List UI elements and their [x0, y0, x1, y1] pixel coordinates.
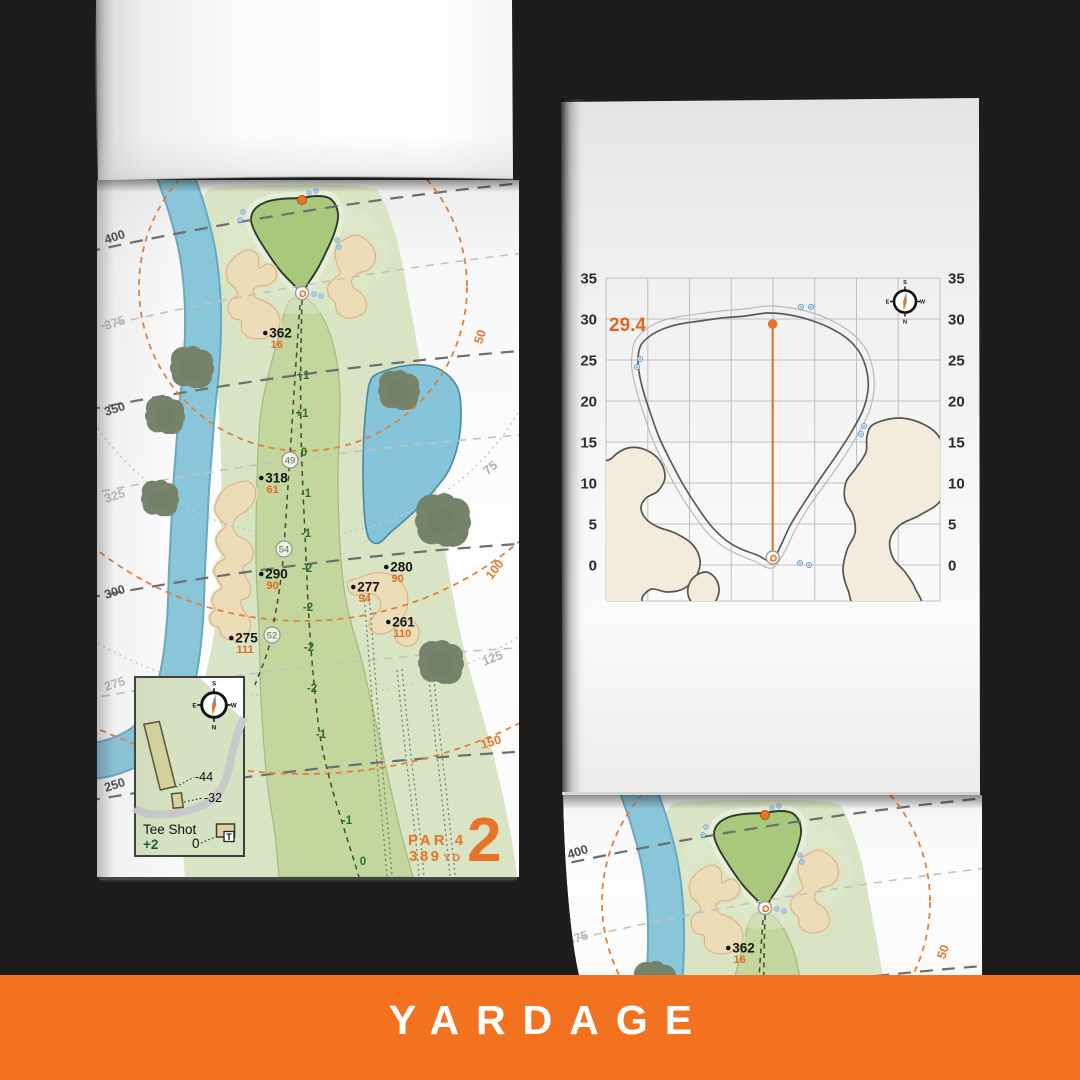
svg-text:10: 10: [948, 476, 965, 493]
svg-text:0: 0: [192, 836, 200, 851]
svg-text:0: 0: [589, 558, 597, 575]
svg-text:-44: -44: [195, 770, 213, 784]
svg-text:YARDAGE: YARDAGE: [389, 997, 709, 1043]
svg-text:5: 5: [948, 517, 956, 534]
svg-text:5: 5: [589, 517, 597, 534]
svg-text:35: 35: [948, 271, 965, 288]
svg-text:T: T: [226, 832, 232, 842]
svg-text:25: 25: [948, 353, 965, 370]
svg-text:2: 2: [467, 806, 501, 875]
svg-text:15: 15: [948, 435, 965, 452]
svg-text:PAR 4: PAR 4: [408, 832, 466, 849]
svg-text:20: 20: [948, 394, 965, 411]
svg-text:30: 30: [948, 312, 965, 329]
svg-text:0: 0: [948, 558, 956, 575]
svg-text:29.4: 29.4: [609, 315, 646, 336]
svg-text:-32: -32: [204, 791, 222, 805]
